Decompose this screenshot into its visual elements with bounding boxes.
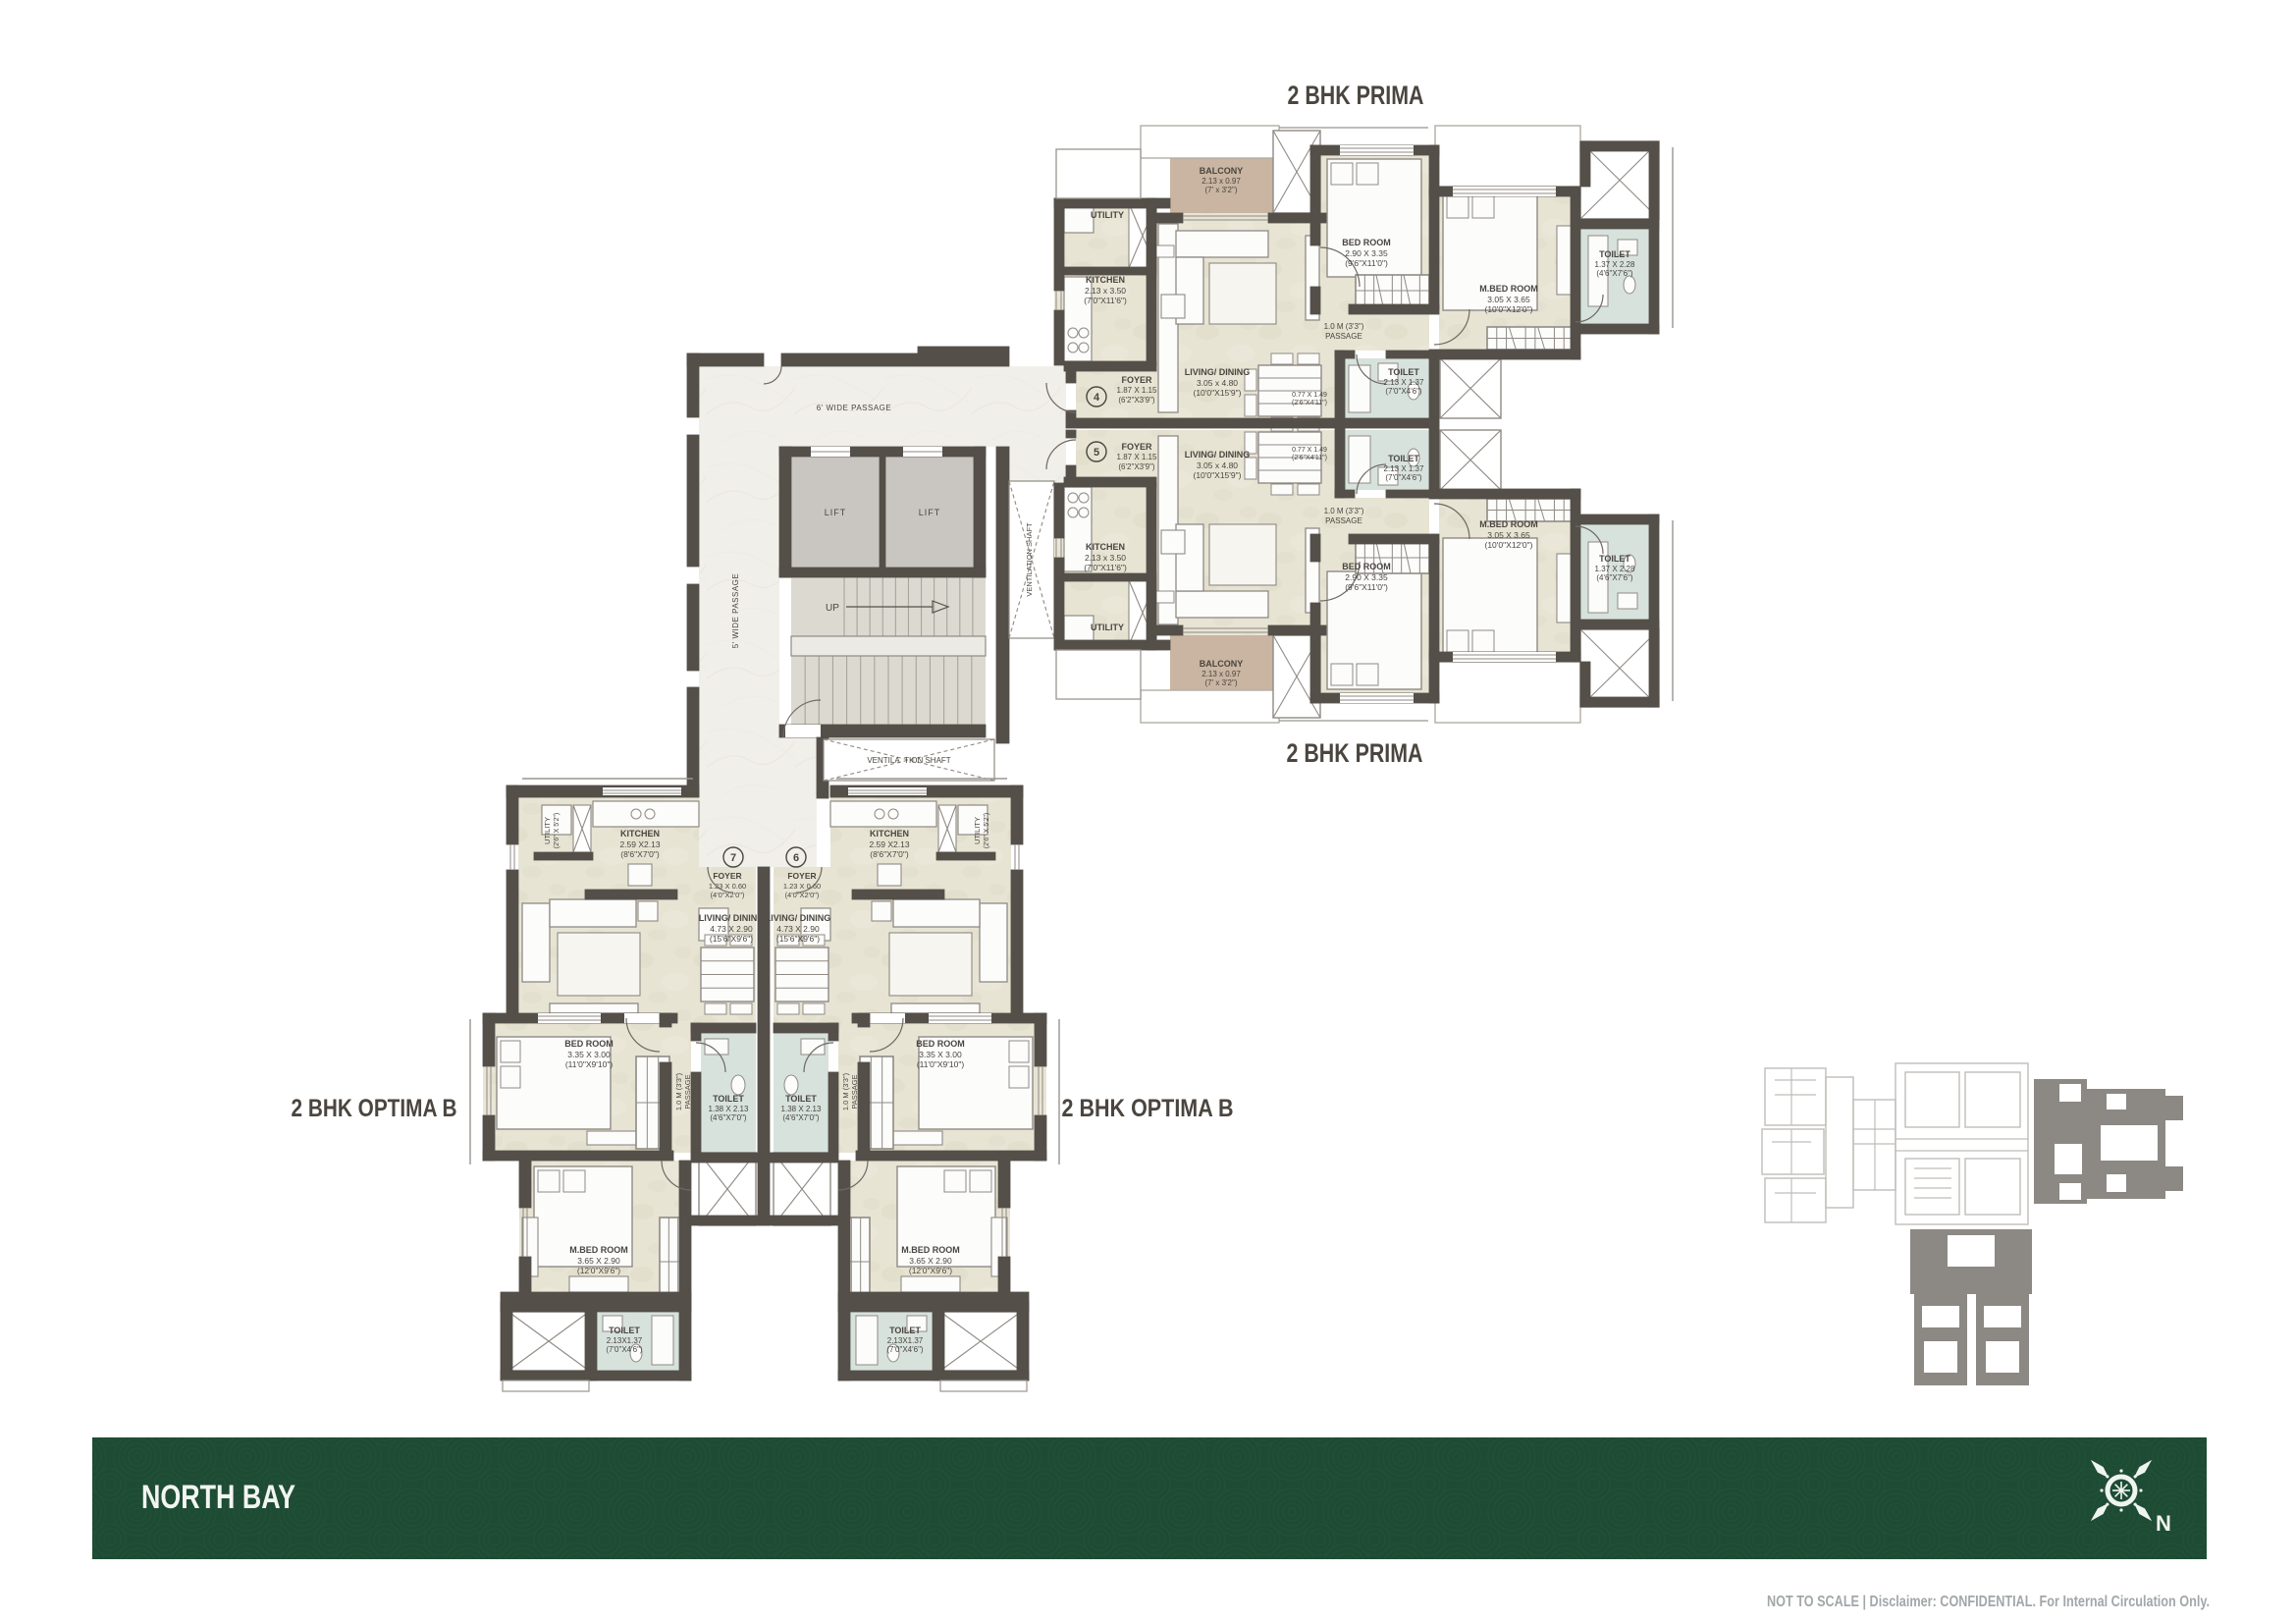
- svg-text:5' WIDE PASSAGE: 5' WIDE PASSAGE: [731, 573, 740, 648]
- svg-text:LIFT: LIFT: [825, 508, 847, 517]
- svg-text:(10'0"X12'0"): (10'0"X12'0"): [1485, 304, 1533, 314]
- svg-text:BALCONY: BALCONY: [1200, 659, 1244, 669]
- svg-text:(2'6" X 5'2"): (2'6" X 5'2"): [984, 813, 990, 848]
- svg-text:TOILET: TOILET: [1388, 454, 1419, 463]
- svg-text:TOILET: TOILET: [889, 1326, 921, 1335]
- svg-text:(10'0"X15'9"): (10'0"X15'9"): [1194, 470, 1242, 480]
- svg-text:PASSAGE: PASSAGE: [683, 1074, 692, 1109]
- svg-text:3.65 X 2.90: 3.65 X 2.90: [909, 1256, 952, 1266]
- svg-text:1.0 M (3'3"): 1.0 M (3'3"): [1324, 322, 1364, 331]
- svg-text:2.59 X2.13: 2.59 X2.13: [869, 839, 909, 849]
- svg-text:2.13 x 0.97: 2.13 x 0.97: [1201, 670, 1241, 678]
- svg-text:1.87 X 1.15: 1.87 X 1.15: [1117, 386, 1157, 395]
- svg-text:LIVING/ DINING: LIVING/ DINING: [766, 913, 831, 923]
- svg-text:1.0 M (3'3"): 1.0 M (3'3"): [1324, 507, 1364, 515]
- svg-text:(8'6"X7'0"): (8'6"X7'0"): [870, 849, 909, 859]
- svg-text:N: N: [2156, 1511, 2171, 1536]
- svg-text:LIVING/ DINING: LIVING/ DINING: [1185, 450, 1251, 460]
- svg-text:TOILET: TOILET: [713, 1094, 744, 1104]
- svg-text:2.59 X2.13: 2.59 X2.13: [619, 839, 660, 849]
- svg-text:6' WIDE PASSAGE: 6' WIDE PASSAGE: [817, 404, 891, 412]
- svg-text:6: 6: [793, 852, 799, 864]
- svg-text:5: 5: [1094, 447, 1099, 459]
- svg-text:(7'0"X11'6"): (7'0"X11'6"): [1084, 563, 1127, 572]
- svg-text:VENTILA TION SHAFT: VENTILA TION SHAFT: [867, 756, 950, 765]
- svg-text:(2'6" X 5'2"): (2'6" X 5'2"): [554, 813, 561, 848]
- svg-text:2.13X1.37: 2.13X1.37: [887, 1336, 924, 1345]
- svg-text:(4'6"X7'6"): (4'6"X7'6"): [1596, 269, 1633, 278]
- svg-text:1.38 X 2.13: 1.38 X 2.13: [709, 1105, 749, 1113]
- svg-text:KITCHEN: KITCHEN: [870, 829, 909, 839]
- svg-text:1.38 X 2.13: 1.38 X 2.13: [781, 1105, 822, 1113]
- svg-text:3.05 X 3.65: 3.05 X 3.65: [1487, 530, 1530, 540]
- svg-text:(10'0"X15'9"): (10'0"X15'9"): [1194, 388, 1242, 398]
- svg-text:2.13 X 1.37: 2.13 X 1.37: [1384, 378, 1424, 387]
- svg-text:7: 7: [730, 852, 736, 864]
- svg-text:(4'6"X7'0"): (4'6"X7'0"): [710, 1113, 747, 1122]
- svg-text:1.0 M (3'3"): 1.0 M (3'3"): [841, 1072, 850, 1110]
- svg-text:(4'6"X7'0"): (4'6"X7'0"): [782, 1113, 820, 1122]
- svg-text:2.13 X 1.37: 2.13 X 1.37: [1384, 464, 1424, 473]
- svg-text:LIFT: LIFT: [919, 508, 941, 517]
- svg-text:(11'0"X9'10"): (11'0"X9'10"): [917, 1059, 965, 1069]
- svg-text:BED ROOM: BED ROOM: [1342, 238, 1391, 247]
- svg-text:2.13 x 3.50: 2.13 x 3.50: [1085, 553, 1126, 563]
- svg-text:PASSAGE: PASSAGE: [1325, 332, 1362, 341]
- svg-text:1.87 X 1.15: 1.87 X 1.15: [1117, 453, 1157, 461]
- svg-text:BED ROOM: BED ROOM: [1342, 562, 1391, 571]
- svg-text:(7' x 3'2"): (7' x 3'2"): [1204, 186, 1237, 194]
- svg-text:(2'6"X4'11"): (2'6"X4'11"): [1292, 455, 1327, 461]
- svg-text:(15'6"X9'6"): (15'6"X9'6"): [710, 934, 753, 944]
- svg-text:KITCHEN: KITCHEN: [1086, 275, 1125, 285]
- svg-text:BED ROOM: BED ROOM: [564, 1039, 614, 1049]
- svg-text:3.65 X 2.90: 3.65 X 2.90: [577, 1256, 620, 1266]
- svg-text:UTILITY: UTILITY: [1091, 623, 1124, 632]
- svg-text:1.37 X 2.28: 1.37 X 2.28: [1595, 260, 1635, 269]
- svg-text:KITCHEN: KITCHEN: [620, 829, 660, 839]
- svg-text:1.23 X 0.60: 1.23 X 0.60: [783, 882, 821, 891]
- svg-text:1.37 X 2.28: 1.37 X 2.28: [1595, 565, 1635, 573]
- svg-text:TOILET: TOILET: [1599, 554, 1630, 564]
- svg-text:0.77 X 1.49: 0.77 X 1.49: [1292, 447, 1327, 454]
- svg-text:(7'0"X4'6"): (7'0"X4'6"): [886, 1345, 924, 1354]
- svg-text:(6'2"X3'9"): (6'2"X3'9"): [1118, 462, 1155, 471]
- svg-text:(11'0"X9'10"): (11'0"X9'10"): [565, 1059, 614, 1069]
- svg-text:FOYER: FOYER: [787, 871, 816, 881]
- svg-text:3.05 X 3.65: 3.05 X 3.65: [1487, 295, 1530, 304]
- svg-text:TOILET: TOILET: [609, 1326, 640, 1335]
- svg-text:UTILITY: UTILITY: [543, 817, 552, 844]
- svg-text:FOYER: FOYER: [713, 871, 741, 881]
- svg-text:(7' x 3'2"): (7' x 3'2"): [1204, 678, 1237, 687]
- svg-text:0.77 X 1.49: 0.77 X 1.49: [1292, 392, 1327, 399]
- svg-text:2 BHK PRIMA: 2 BHK PRIMA: [1288, 81, 1424, 110]
- svg-text:LIVING/ DINING: LIVING/ DINING: [1185, 367, 1251, 377]
- svg-text:2.13X1.37: 2.13X1.37: [607, 1336, 643, 1345]
- svg-text:FOYER: FOYER: [1121, 442, 1152, 452]
- svg-text:1.23 X 0.60: 1.23 X 0.60: [709, 882, 746, 891]
- svg-text:M.BED ROOM: M.BED ROOM: [1479, 519, 1538, 529]
- svg-text:(7'0"X4'6"): (7'0"X4'6"): [1385, 473, 1422, 482]
- svg-text:LIVING/ DINING: LIVING/ DINING: [699, 913, 765, 923]
- svg-text:M.BED ROOM: M.BED ROOM: [1479, 284, 1538, 294]
- svg-text:BALCONY: BALCONY: [1200, 166, 1244, 176]
- svg-text:(7'0"X11'6"): (7'0"X11'6"): [1084, 296, 1127, 305]
- svg-text:(9'6"X11'0"): (9'6"X11'0"): [1345, 258, 1388, 268]
- svg-text:UTILITY: UTILITY: [1091, 210, 1124, 220]
- svg-text:UP: UP: [826, 603, 839, 614]
- svg-text:3.35 X 3.00: 3.35 X 3.00: [567, 1050, 611, 1059]
- svg-text:FOYER: FOYER: [1121, 375, 1152, 385]
- svg-text:2 BHK PRIMA: 2 BHK PRIMA: [1287, 738, 1423, 768]
- svg-text:VENTILATION SHAFT: VENTILATION SHAFT: [1025, 522, 1034, 597]
- svg-text:3.05 x 4.80: 3.05 x 4.80: [1197, 378, 1238, 388]
- svg-text:(8'6"X7'0"): (8'6"X7'0"): [620, 849, 660, 859]
- svg-text:2.90 X 3.35: 2.90 X 3.35: [1345, 248, 1388, 258]
- svg-text:3.35 X 3.00: 3.35 X 3.00: [919, 1050, 962, 1059]
- svg-text:NOT TO SCALE | Disclaimer: CON: NOT TO SCALE | Disclaimer: CONFIDENTIAL.…: [1767, 1594, 2210, 1610]
- svg-text:TOILET: TOILET: [1388, 367, 1419, 377]
- svg-text:1.0 M (3'3"): 1.0 M (3'3"): [674, 1072, 683, 1110]
- svg-text:2 BHK OPTIMA B: 2 BHK OPTIMA B: [1062, 1095, 1234, 1122]
- svg-text:2.13 x 3.50: 2.13 x 3.50: [1085, 286, 1126, 296]
- svg-text:BED ROOM: BED ROOM: [916, 1039, 965, 1049]
- svg-text:TOILET: TOILET: [785, 1094, 817, 1104]
- svg-text:(7'0"X4'6"): (7'0"X4'6"): [1385, 387, 1422, 396]
- svg-text:4.73 X 2.90: 4.73 X 2.90: [710, 924, 753, 934]
- svg-text:KITCHEN: KITCHEN: [1086, 542, 1125, 552]
- svg-text:UTILITY: UTILITY: [973, 817, 982, 844]
- svg-text:(10'0"X12'0"): (10'0"X12'0"): [1485, 540, 1533, 550]
- svg-text:(9'6"X11'0"): (9'6"X11'0"): [1345, 582, 1388, 592]
- svg-text:2.90 X 3.35: 2.90 X 3.35: [1345, 572, 1388, 582]
- svg-text:(15'6"X9'6"): (15'6"X9'6"): [776, 934, 820, 944]
- svg-text:PASSAGE: PASSAGE: [850, 1074, 859, 1109]
- svg-text:(2'6"X4'11"): (2'6"X4'11"): [1292, 400, 1327, 406]
- svg-text:4.73 X 2.90: 4.73 X 2.90: [776, 924, 820, 934]
- svg-text:(6'2"X3'9"): (6'2"X3'9"): [1118, 396, 1155, 405]
- svg-text:(12'0"X9'6"): (12'0"X9'6"): [577, 1266, 620, 1275]
- svg-text:(4'6"X7'6"): (4'6"X7'6"): [1596, 573, 1633, 582]
- svg-text:M.BED ROOM: M.BED ROOM: [569, 1245, 628, 1255]
- svg-text:2.13 x 0.97: 2.13 x 0.97: [1201, 177, 1241, 186]
- svg-text:3.05 x 4.80: 3.05 x 4.80: [1197, 460, 1238, 470]
- svg-text:2 BHK OPTIMA B: 2 BHK OPTIMA B: [292, 1095, 457, 1122]
- svg-text:M.BED ROOM: M.BED ROOM: [901, 1245, 960, 1255]
- svg-text:4: 4: [1094, 392, 1100, 404]
- svg-text:(7'0"X4'6"): (7'0"X4'6"): [606, 1345, 643, 1354]
- svg-text:NORTH BAY: NORTH BAY: [141, 1479, 295, 1516]
- svg-text:(12'0"X9'6"): (12'0"X9'6"): [909, 1266, 952, 1275]
- svg-text:TOILET: TOILET: [1599, 249, 1630, 259]
- svg-text:PASSAGE: PASSAGE: [1325, 516, 1362, 525]
